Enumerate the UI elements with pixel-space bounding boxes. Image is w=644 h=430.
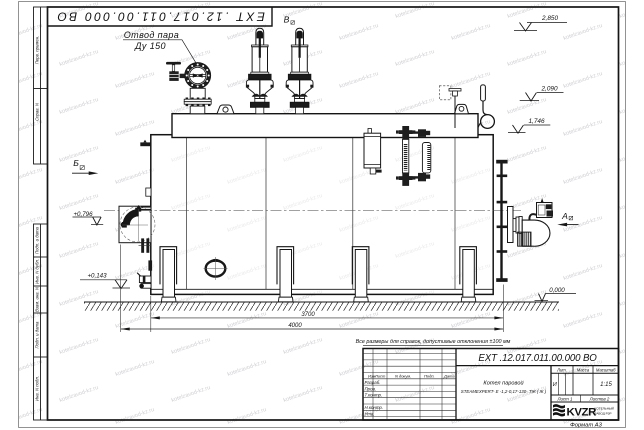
svg-text:Взам. инв. N: Взам. инв. N: [35, 286, 40, 312]
svg-text:Утв.: Утв.: [365, 412, 375, 417]
svg-text:Подп.: Подп.: [424, 374, 435, 379]
svg-text:3700: 3700: [301, 312, 315, 318]
svg-text:Т.контр.: Т.контр.: [365, 393, 383, 398]
svg-text:ЗАВОД РЗР: ЗАВОД РЗР: [595, 412, 612, 416]
svg-text:В: В: [284, 14, 290, 24]
svg-text:Инв. N подл.: Инв. N подл.: [35, 376, 40, 401]
svg-text:Ду 150: Ду 150: [134, 41, 166, 51]
svg-text:И: И: [553, 382, 557, 388]
svg-text:+0,143: +0,143: [87, 273, 107, 280]
svg-text:Лит.: Лит.: [556, 367, 567, 372]
svg-text:А: А: [561, 211, 568, 221]
svg-text:STEAMEXPERT- Е -1,2-0,17-130-: STEAMEXPERT- Е -1,2-0,17-130- ТЖ ( Ж ): [461, 389, 547, 394]
svg-text:Подп. и дата: Подп. и дата: [35, 321, 40, 349]
svg-text:Листов 2: Листов 2: [589, 397, 610, 402]
svg-text:2,850: 2,850: [541, 15, 558, 22]
svg-text:Н.контр.: Н.контр.: [365, 405, 384, 410]
svg-text:Б: Б: [73, 158, 79, 168]
svg-text:Лист: Лист: [374, 374, 386, 379]
svg-text:4000: 4000: [288, 323, 302, 329]
svg-text:1,746: 1,746: [529, 118, 545, 125]
svg-text:Отвод пара: Отвод пара: [124, 30, 179, 40]
svg-text:Справ. N: Справ. N: [35, 102, 40, 121]
svg-text:2,090: 2,090: [541, 86, 558, 93]
svg-text:Лист 1: Лист 1: [557, 397, 574, 402]
svg-text:ЕХТ .12.017.011.00.000 ВО: ЕХТ .12.017.011.00.000 ВО: [55, 10, 265, 24]
svg-text:1:15: 1:15: [600, 382, 612, 388]
svg-text:0,000: 0,000: [549, 287, 565, 294]
svg-text:Пров.: Пров.: [365, 386, 377, 391]
svg-text:Подп. и дата: Подп. и дата: [35, 226, 40, 254]
svg-text:Перв. примен.: Перв. примен.: [35, 36, 40, 65]
svg-text:Масса: Масса: [577, 367, 590, 372]
svg-text:Формат А3: Формат А3: [570, 423, 602, 429]
svg-text:Дата: Дата: [443, 374, 455, 379]
svg-text:Все размеры для справок, допус: Все размеры для справок, допустимые откл…: [356, 339, 511, 345]
svg-text:КОТЕЛЬНЫЙ: КОТЕЛЬНЫЙ: [595, 407, 614, 411]
svg-text:KVZR: KVZR: [567, 406, 597, 418]
svg-text:Котел паровой: Котел паровой: [483, 379, 523, 386]
svg-text:Масштаб: Масштаб: [596, 367, 616, 372]
svg-text:ЕХТ .12.017.011.00.000 ВО: ЕХТ .12.017.011.00.000 ВО: [478, 353, 597, 364]
svg-text:Разраб.: Разраб.: [365, 380, 381, 385]
svg-text:Инв. N дубл.: Инв. N дубл.: [35, 259, 40, 284]
svg-text:N докум.: N докум.: [395, 374, 411, 379]
